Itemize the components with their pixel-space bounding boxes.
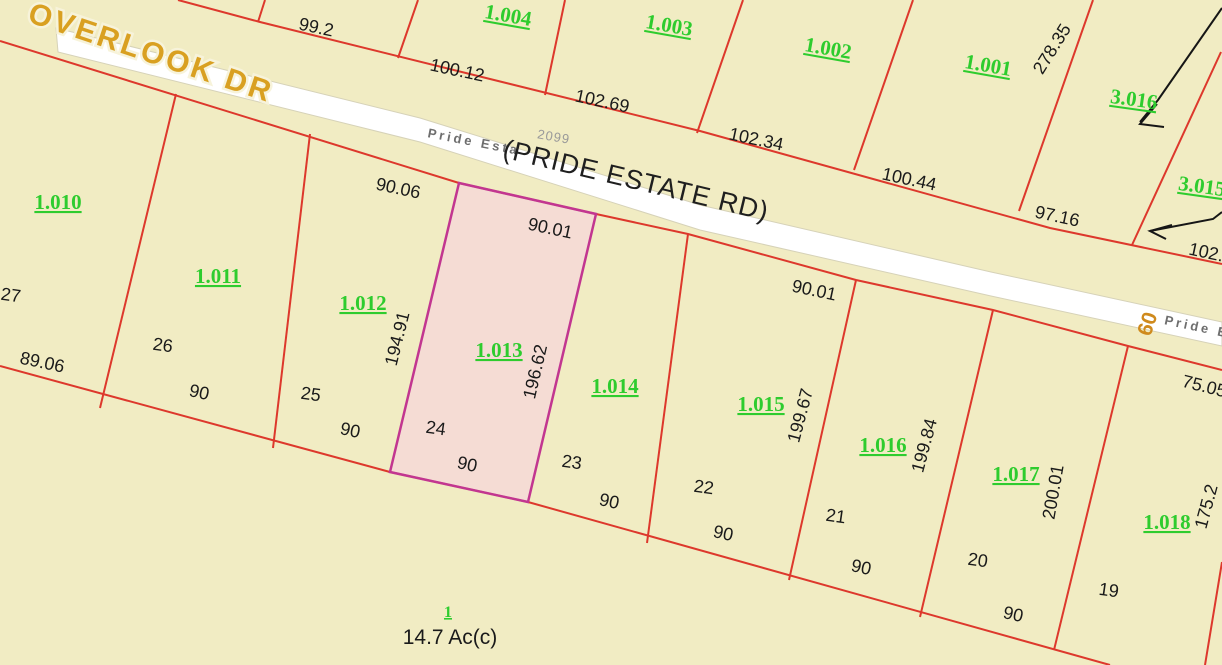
lot-number: 23 (561, 451, 584, 474)
dim-label: 90 (711, 521, 735, 545)
parcel-id-1017: 1.017 (992, 462, 1039, 486)
lot-number: 25 (300, 383, 323, 406)
lot-number: 22 (693, 476, 716, 499)
lot-number: 19 (1098, 579, 1121, 602)
parcel-id-1010: 1.010 (34, 190, 81, 214)
parcel-id-1015: 1.015 (737, 392, 784, 416)
parcel-map-stage: OVERLOOK DR Pride Esta 2099 (PRIDE ESTAT… (0, 0, 1222, 665)
lot-number: 20 (967, 549, 990, 572)
parcel-id-1014: 1.014 (591, 374, 639, 398)
parcel-id-1013: 1.013 (475, 338, 522, 362)
lot-number: 24 (425, 417, 448, 440)
lot-number: 26 (152, 334, 175, 357)
lot-number: 27 (0, 284, 22, 307)
parcel-id-1011: 1.011 (195, 264, 241, 288)
dim-label: 90 (849, 555, 873, 579)
parcel-id-1018: 1.018 (1143, 510, 1190, 534)
acreage-label: 14.7 Ac(c) (403, 626, 498, 649)
parcel-id-1016: 1.016 (859, 433, 906, 457)
dim-label: 90 (187, 380, 211, 404)
parcel-id-1: 1 (444, 604, 452, 621)
dim-label: 90 (338, 418, 362, 442)
lot-number: 21 (825, 505, 848, 528)
parcel-id-1012: 1.012 (339, 291, 386, 315)
map-canvas[interactable]: OVERLOOK DR Pride Esta 2099 (PRIDE ESTAT… (0, 0, 1222, 665)
dim-label: 90 (597, 489, 621, 513)
dim-label: 90 (1001, 602, 1025, 626)
dim-label: 90 (455, 452, 479, 476)
